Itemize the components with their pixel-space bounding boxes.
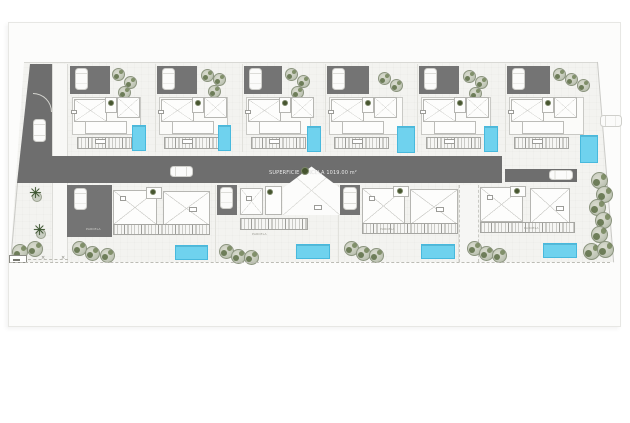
swimming-pool xyxy=(218,125,231,151)
car-icon xyxy=(343,187,357,210)
tree-icon xyxy=(85,246,100,261)
plot-divider xyxy=(325,64,326,152)
tree-icon xyxy=(492,248,507,263)
stairs-hatch xyxy=(362,223,458,234)
swimming-pool xyxy=(296,244,330,259)
plant-icon xyxy=(514,188,520,194)
parcela-label: PARCELA xyxy=(380,227,395,231)
label-chip xyxy=(508,110,514,114)
setback-dash-line xyxy=(28,259,68,260)
plant-icon xyxy=(282,100,288,106)
label-chip xyxy=(487,195,493,200)
label-chip xyxy=(352,139,363,144)
car-left-road-icon xyxy=(33,119,46,142)
label-chip xyxy=(556,206,564,211)
boundary-line-top xyxy=(24,62,597,63)
stairs-hatch xyxy=(240,218,308,230)
plot-divider xyxy=(458,185,459,262)
label-chip xyxy=(420,110,426,114)
plant-icon xyxy=(150,189,156,195)
terrace xyxy=(434,121,476,134)
car-icon xyxy=(220,187,233,209)
terrace xyxy=(342,121,384,134)
plant-icon xyxy=(365,100,371,106)
boundary-dash-bottom xyxy=(10,262,610,263)
parcela-label: PARCELA xyxy=(86,227,101,231)
tree-icon xyxy=(100,248,115,263)
tree-icon xyxy=(112,68,125,81)
plot-divider xyxy=(155,64,156,152)
tree-icon xyxy=(390,79,403,92)
plot-divider xyxy=(417,64,418,152)
plant-icon xyxy=(267,189,273,195)
plot-divider xyxy=(505,64,506,152)
roof-skylight xyxy=(423,99,456,122)
roof-skylight xyxy=(74,99,107,122)
swimming-pool xyxy=(543,243,577,258)
label-chip xyxy=(532,139,543,144)
swimming-pool xyxy=(580,135,598,163)
roof-skylight xyxy=(117,97,140,118)
terrace xyxy=(522,121,564,134)
car-icon xyxy=(249,68,262,90)
plant-icon xyxy=(457,100,463,106)
car-main-road-icon xyxy=(170,166,193,177)
site-plan: PARCELAPARCELAPARCELAPARCELA✳✳×× xyxy=(0,0,630,423)
label-chip xyxy=(158,110,164,114)
label-chip xyxy=(189,207,197,212)
terrace xyxy=(85,121,127,134)
label-chip xyxy=(95,139,106,144)
label-chip xyxy=(120,196,126,201)
swimming-pool xyxy=(175,245,208,260)
roof-skylight xyxy=(248,99,281,122)
car-icon xyxy=(75,68,88,90)
plot-divider xyxy=(242,64,243,152)
palm-tree-icon: ✳ xyxy=(33,223,49,239)
plant-icon xyxy=(397,188,403,194)
car-icon xyxy=(424,68,437,90)
tree-icon xyxy=(378,72,391,85)
car-side-lane-icon xyxy=(549,170,573,180)
car-icon xyxy=(162,68,175,90)
swimming-pool xyxy=(421,244,455,259)
label-chip xyxy=(436,207,444,212)
label-chip xyxy=(245,110,251,114)
car-icon xyxy=(74,188,87,210)
terrace xyxy=(172,121,214,134)
label-chip xyxy=(182,139,193,144)
tree-icon xyxy=(369,248,384,263)
roof-skylight xyxy=(530,188,570,224)
swimming-pool xyxy=(484,126,498,152)
roof-skylight xyxy=(163,191,210,226)
parcela-label: PARCELA xyxy=(524,226,539,230)
roof-skylight xyxy=(410,189,458,225)
plant-icon xyxy=(545,100,551,106)
swimming-pool xyxy=(397,126,415,153)
label-chip xyxy=(444,139,455,144)
roof-skylight xyxy=(374,97,397,118)
roof-skylight xyxy=(554,97,577,118)
tree-icon xyxy=(285,68,298,81)
label-chip xyxy=(246,196,252,201)
car-icon xyxy=(512,68,525,90)
roof-skylight xyxy=(161,99,194,122)
swimming-pool xyxy=(132,125,146,151)
roof-skylight xyxy=(466,97,489,118)
tree-icon xyxy=(597,241,614,258)
plant-icon xyxy=(108,100,114,106)
roof-skylight xyxy=(331,99,364,122)
label-chip xyxy=(71,110,77,114)
plot-divider xyxy=(215,185,216,262)
label-chip xyxy=(369,196,375,201)
terrace xyxy=(259,121,301,134)
label-chip xyxy=(328,110,334,114)
stairs-hatch xyxy=(113,224,210,235)
road-surface-label: SUPERFICIE PARCELA 1019.00 m² xyxy=(267,170,359,176)
car-outer-road-icon xyxy=(600,115,622,127)
tree-icon xyxy=(577,79,590,92)
label-chip xyxy=(269,139,280,144)
roof-skylight xyxy=(240,188,263,215)
car-icon xyxy=(332,68,345,90)
roof-skylight xyxy=(511,99,544,122)
plant-icon xyxy=(195,100,201,106)
road-tree-icon xyxy=(301,167,309,175)
label-chip xyxy=(314,205,322,210)
parcela-label: PARCELA xyxy=(252,232,267,236)
roof-skylight xyxy=(204,97,227,118)
palm-tree-icon: ✳ xyxy=(29,186,45,202)
roof-skylight xyxy=(291,97,314,118)
swimming-pool xyxy=(307,126,321,152)
